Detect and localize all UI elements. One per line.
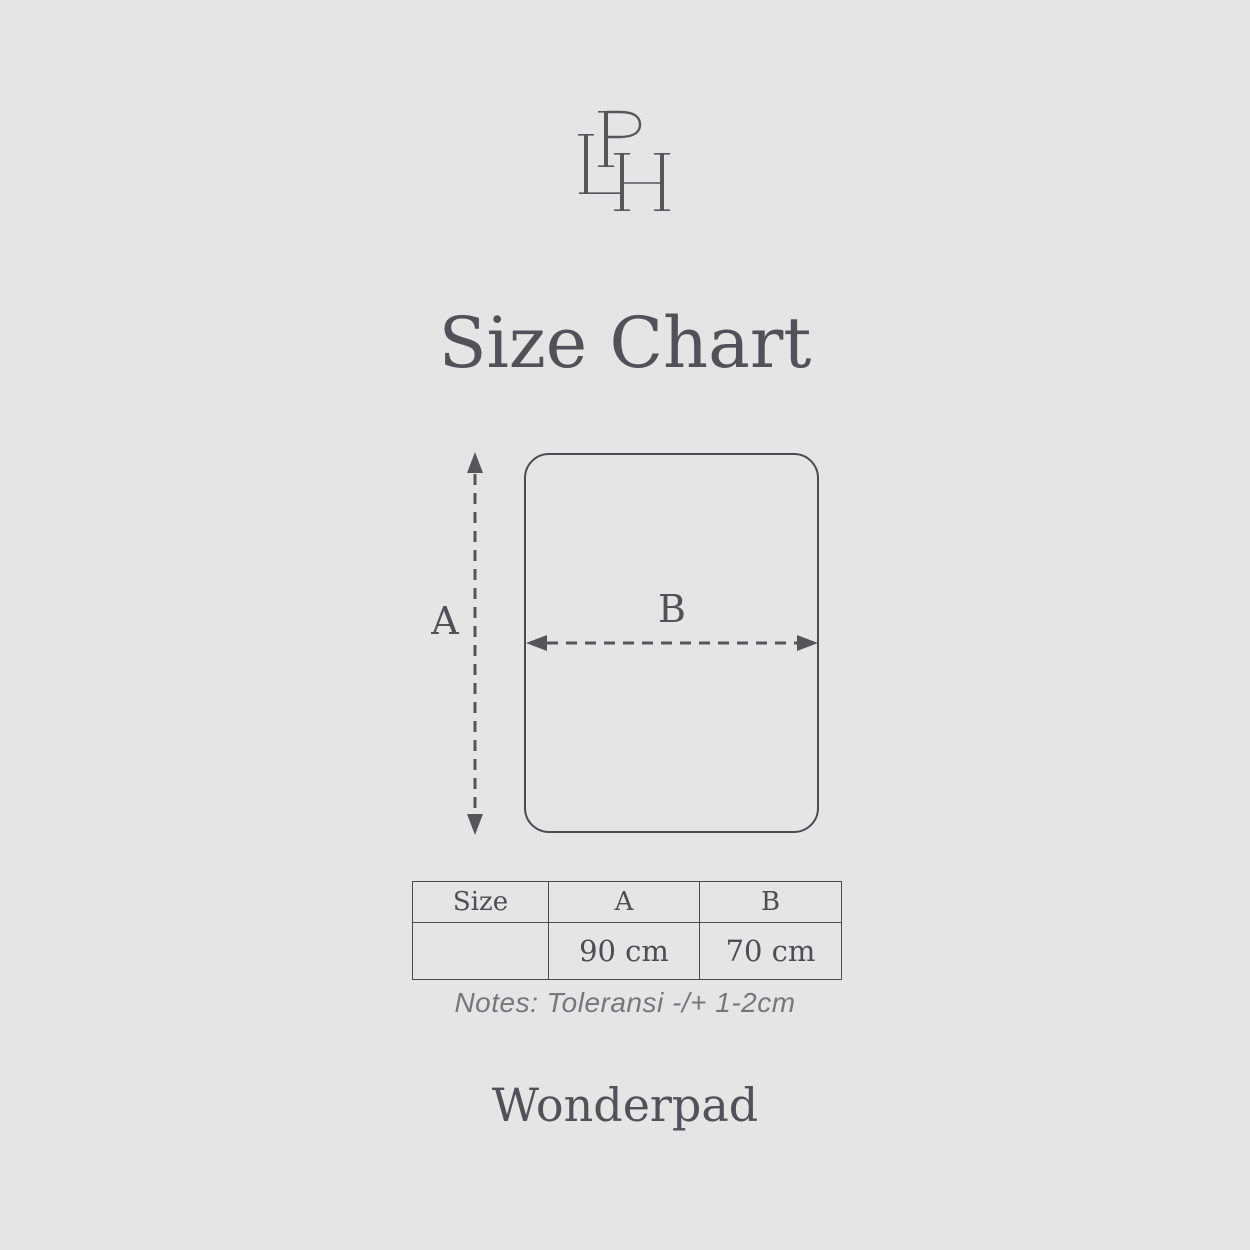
size-table-cell-size [413, 923, 549, 980]
brand-monogram-lph-logo [566, 86, 686, 221]
size-table-cell-b: 70 cm [700, 923, 842, 980]
monogram-letter-h [614, 153, 670, 211]
dimension-a-label: A [420, 598, 470, 644]
size-chart-page: Size Chart A B Size A B 90 cm 70 cm [0, 0, 1250, 1250]
size-table-value-row: 90 cm 70 cm [413, 923, 842, 980]
product-dimension-diagram [410, 440, 860, 850]
monogram-letter-p [598, 111, 640, 167]
size-table-header-size: Size [413, 882, 549, 923]
width-dimension-arrow [526, 635, 818, 651]
size-table: Size A B 90 cm 70 cm [412, 881, 842, 980]
dimension-b-label: B [647, 586, 697, 632]
page-title: Size Chart [0, 303, 1250, 384]
size-table-header-a: A [549, 882, 700, 923]
product-name: Wonderpad [0, 1078, 1250, 1132]
monogram-letter-l [578, 134, 622, 194]
tolerance-note: Notes: Toleransi -/+ 1-2cm [0, 987, 1250, 1019]
size-table-header-row: Size A B [413, 882, 842, 923]
size-table-cell-a: 90 cm [549, 923, 700, 980]
size-table-header-b: B [700, 882, 842, 923]
